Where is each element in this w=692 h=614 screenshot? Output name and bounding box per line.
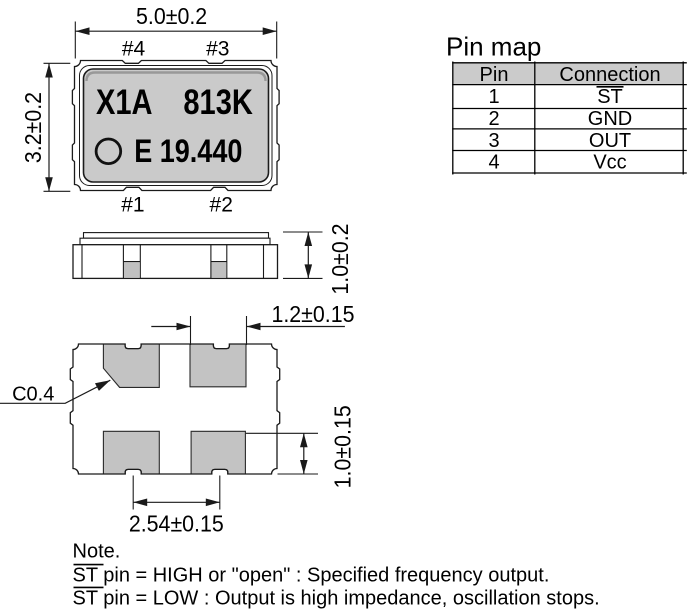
svg-text:#4: #4 <box>122 37 146 60</box>
svg-text:GND: GND <box>588 108 632 130</box>
svg-text:Note.: Note. <box>73 540 121 562</box>
svg-text:#2: #2 <box>210 194 233 217</box>
svg-text:#3: #3 <box>206 37 229 60</box>
svg-text:#1: #1 <box>121 194 144 217</box>
svg-text:2: 2 <box>488 108 499 130</box>
svg-text:1: 1 <box>488 86 499 108</box>
svg-text:3.2±0.2: 3.2±0.2 <box>20 92 46 163</box>
svg-text:ST: ST <box>597 86 623 108</box>
svg-text:C0.4: C0.4 <box>12 384 54 406</box>
svg-text:5.0±0.2: 5.0±0.2 <box>136 3 207 29</box>
svg-text:3: 3 <box>488 130 499 152</box>
svg-text:ST pin = HIGH or "open" : Spec: ST pin = HIGH or "open" : Specified freq… <box>73 564 550 586</box>
svg-text:E 19.440: E 19.440 <box>134 134 242 170</box>
svg-text:4: 4 <box>488 152 499 174</box>
svg-text:813K: 813K <box>183 82 252 121</box>
svg-text:1.0±0.15: 1.0±0.15 <box>329 405 355 488</box>
svg-text:Vcc: Vcc <box>593 152 626 174</box>
svg-text:ST pin = LOW : Output is high: ST pin = LOW : Output is high impedance,… <box>73 587 600 609</box>
svg-text:Pin: Pin <box>480 64 509 86</box>
svg-text:1.2±0.15: 1.2±0.15 <box>271 301 354 327</box>
svg-text:Pin map: Pin map <box>446 31 541 61</box>
svg-text:OUT: OUT <box>589 130 631 152</box>
svg-text:X1A: X1A <box>96 82 153 121</box>
svg-text:1.0±0.2: 1.0±0.2 <box>327 223 353 294</box>
svg-text:2.54±0.15: 2.54±0.15 <box>129 511 224 537</box>
svg-text:Connection: Connection <box>559 64 660 86</box>
